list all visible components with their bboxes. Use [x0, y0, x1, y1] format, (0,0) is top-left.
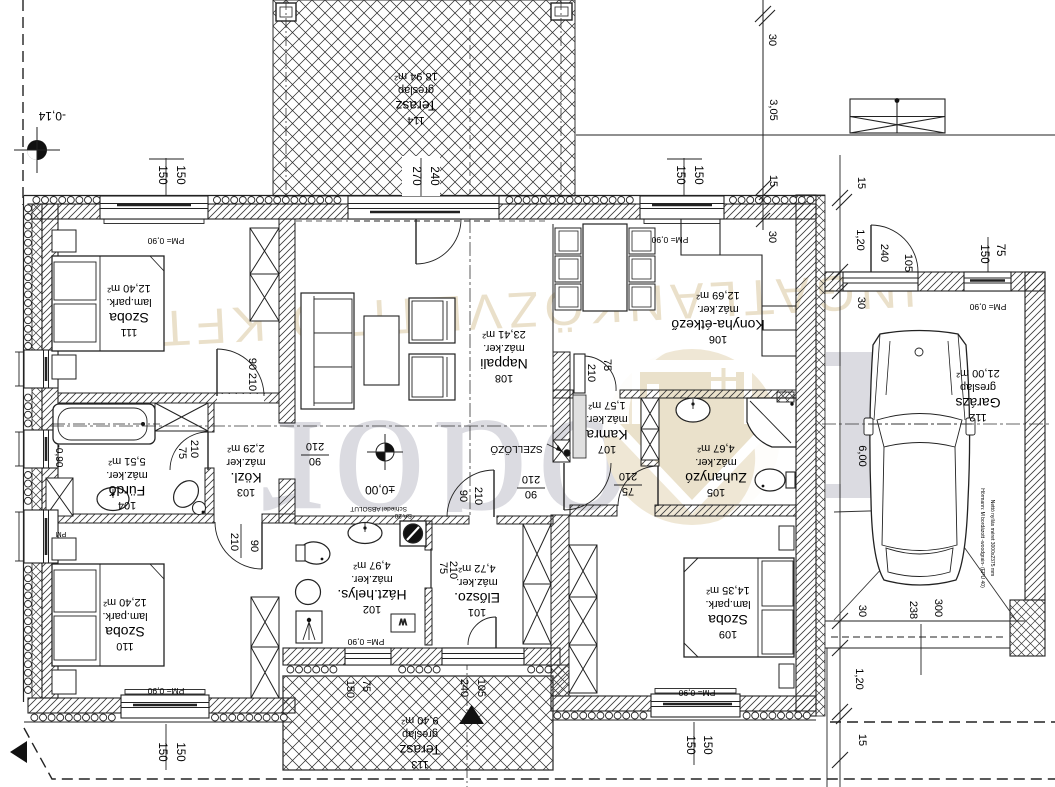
svg-text:Szoba: Szoba [105, 624, 145, 640]
svg-text:270: 270 [410, 166, 422, 185]
svg-text:Konyha-étkező: Konyha-étkező [671, 317, 765, 333]
svg-text:30: 30 [766, 231, 778, 243]
svg-text:107: 107 [598, 443, 616, 455]
svg-text:Kamra: Kamra [586, 427, 627, 443]
svg-text:máz.ker.: máz.ker. [351, 573, 393, 585]
svg-text:12,40 m²: 12,40 m² [103, 596, 147, 608]
svg-text:90: 90 [457, 490, 469, 502]
svg-text:Fürdő: Fürdő [109, 483, 146, 499]
svg-text:Nappali: Nappali [480, 356, 527, 372]
svg-text:210: 210 [472, 487, 484, 505]
svg-text:SZELLŐZŐ: SZELLŐZŐ [490, 443, 542, 457]
svg-text:102: 102 [363, 603, 381, 615]
svg-text:23,41 m²: 23,41 m² [482, 328, 526, 340]
svg-text:máz.ker.: máz.ker. [695, 456, 737, 468]
svg-text:150: 150 [156, 165, 168, 184]
svg-text:150: 150 [674, 165, 686, 184]
svg-text:máz.ker.: máz.ker. [483, 342, 525, 354]
svg-text:4,97 m²: 4,97 m² [353, 559, 391, 571]
svg-text:75: 75 [622, 485, 634, 497]
svg-text:15: 15 [767, 175, 779, 187]
svg-text:Zuhanyzó: Zuhanyzó [685, 470, 747, 486]
svg-text:105: 105 [475, 679, 487, 697]
svg-text:12,40 m²: 12,40 m² [107, 282, 151, 294]
svg-text:105: 105 [707, 486, 725, 498]
svg-text:Szoba: Szoba [109, 310, 149, 326]
svg-text:30: 30 [855, 297, 867, 309]
svg-text:Garázs: Garázs [955, 395, 1000, 411]
svg-text:lam.park.: lam.park. [106, 296, 151, 308]
svg-text:104: 104 [118, 499, 136, 511]
svg-text:210: 210 [585, 364, 597, 382]
svg-text:-0,14: -0,14 [38, 109, 66, 123]
svg-text:101: 101 [468, 606, 486, 618]
svg-text:Schiedel ABSOLUT: Schiedel ABSOLUT [350, 505, 407, 512]
svg-text:9,40 m²: 9,40 m² [401, 714, 439, 726]
svg-text:210: 210 [522, 473, 540, 485]
svg-text:PM= 0,90: PM= 0,90 [147, 686, 184, 696]
svg-text:150: 150 [156, 742, 168, 761]
svg-text:PM= 0,90: PM= 0,90 [347, 637, 384, 647]
svg-text:210: 210 [306, 440, 324, 452]
svg-text:PM= 0,90: PM= 0,90 [651, 235, 688, 245]
svg-text:114: 114 [407, 114, 425, 126]
svg-text:150: 150 [692, 165, 704, 184]
svg-text:110: 110 [116, 640, 134, 652]
svg-text:150: 150 [701, 735, 713, 754]
svg-text:15: 15 [856, 734, 868, 746]
svg-text:-0,90: -0,90 [53, 445, 64, 468]
svg-text:PM= 0,90: PM= 0,90 [678, 688, 715, 698]
svg-text:PM= 0,90: PM= 0,90 [969, 302, 1006, 312]
svg-text:240: 240 [878, 244, 890, 262]
svg-text:4,67 m²: 4,67 m² [697, 442, 735, 454]
svg-text:90: 90 [525, 488, 537, 500]
svg-text:Terasz: Terasz [399, 742, 440, 758]
svg-text:75: 75 [601, 359, 613, 371]
svg-text:greslap: greslap [960, 381, 996, 393]
svg-text:3,05: 3,05 [767, 99, 779, 120]
svg-text:90: 90 [309, 455, 321, 467]
svg-text:6,00: 6,00 [856, 445, 868, 466]
svg-text:210: 210 [188, 440, 200, 458]
svg-text:105: 105 [902, 254, 914, 272]
svg-text:SA 20: SA 20 [394, 512, 412, 519]
svg-text:Hörmann: M bordázott -woodgrai: Hörmann: M bordázott -woodgrain- (EPU 40… [979, 488, 985, 588]
svg-text:1,20: 1,20 [853, 668, 865, 689]
svg-text:Házt.helys.: Házt.helys. [337, 587, 406, 603]
svg-text:238: 238 [907, 601, 919, 619]
svg-text:150: 150 [978, 244, 990, 263]
svg-text:150: 150 [174, 742, 186, 761]
svg-text:210: 210 [619, 470, 637, 482]
svg-text:21,00 m²: 21,00 m² [956, 367, 1000, 379]
svg-text:240: 240 [458, 679, 470, 697]
svg-text:PM: PM [56, 530, 67, 537]
svg-text:75: 75 [176, 447, 188, 459]
svg-text:lam.park.: lam.park. [102, 610, 147, 622]
svg-text:30: 30 [856, 605, 868, 617]
svg-text:15: 15 [855, 177, 867, 189]
svg-text:109: 109 [719, 628, 737, 640]
svg-text:máz.ker.: máz.ker. [697, 303, 739, 315]
svg-text:113: 113 [411, 758, 429, 770]
svg-text:150: 150 [344, 680, 356, 698]
svg-text:1,20: 1,20 [854, 229, 866, 250]
svg-text:111: 111 [121, 326, 138, 338]
svg-text:150: 150 [684, 735, 696, 754]
svg-text:Terasz: Terasz [395, 98, 436, 114]
svg-text:75: 75 [360, 680, 372, 692]
svg-text:4,72 m²: 4,72 m² [458, 562, 496, 574]
svg-text:lam.park.: lam.park. [705, 598, 750, 610]
svg-text:210: 210 [246, 373, 258, 391]
svg-text:5,51 m²: 5,51 m² [108, 455, 146, 467]
svg-text:máz.ker.: máz.ker. [456, 576, 498, 588]
svg-text:PM= 0,90: PM= 0,90 [147, 236, 184, 246]
svg-text:greslap: greslap [402, 728, 438, 740]
svg-text:máz.ker.: máz.ker. [586, 413, 628, 425]
svg-text:W: W [399, 617, 407, 626]
svg-text:Nettó nyílás méret 3000x2375 m: Nettó nyílás méret 3000x2375 mm [989, 500, 995, 576]
svg-text:300: 300 [932, 599, 944, 617]
svg-text:90: 90 [248, 540, 260, 552]
svg-text:Szoba: Szoba [708, 612, 748, 628]
svg-text:30: 30 [766, 34, 778, 46]
svg-text:240: 240 [428, 166, 440, 185]
svg-text:±0,00: ±0,00 [365, 483, 395, 497]
svg-text:12,69 m²: 12,69 m² [696, 289, 740, 301]
svg-text:Közl.: Közl. [230, 470, 261, 486]
svg-text:14,35 m²: 14,35 m² [706, 584, 750, 596]
svg-text:112: 112 [969, 411, 987, 423]
svg-text:106: 106 [709, 333, 727, 345]
svg-text:1,57 m²: 1,57 m² [588, 399, 626, 411]
svg-text:75: 75 [994, 244, 1006, 257]
svg-text:108: 108 [495, 372, 513, 384]
svg-text:2,29 m²: 2,29 m² [227, 442, 265, 454]
svg-text:greslap: greslap [398, 84, 434, 96]
svg-text:máz.ker.: máz.ker. [106, 469, 148, 481]
svg-text:103: 103 [237, 486, 255, 498]
svg-text:Előszo.: Előszo. [454, 590, 500, 606]
svg-text:210: 210 [228, 533, 240, 551]
svg-text:18,94 m²: 18,94 m² [394, 70, 438, 82]
svg-text:90: 90 [246, 358, 258, 370]
svg-text:máz.ker: máz.ker [226, 456, 265, 468]
svg-text:150: 150 [174, 165, 186, 184]
